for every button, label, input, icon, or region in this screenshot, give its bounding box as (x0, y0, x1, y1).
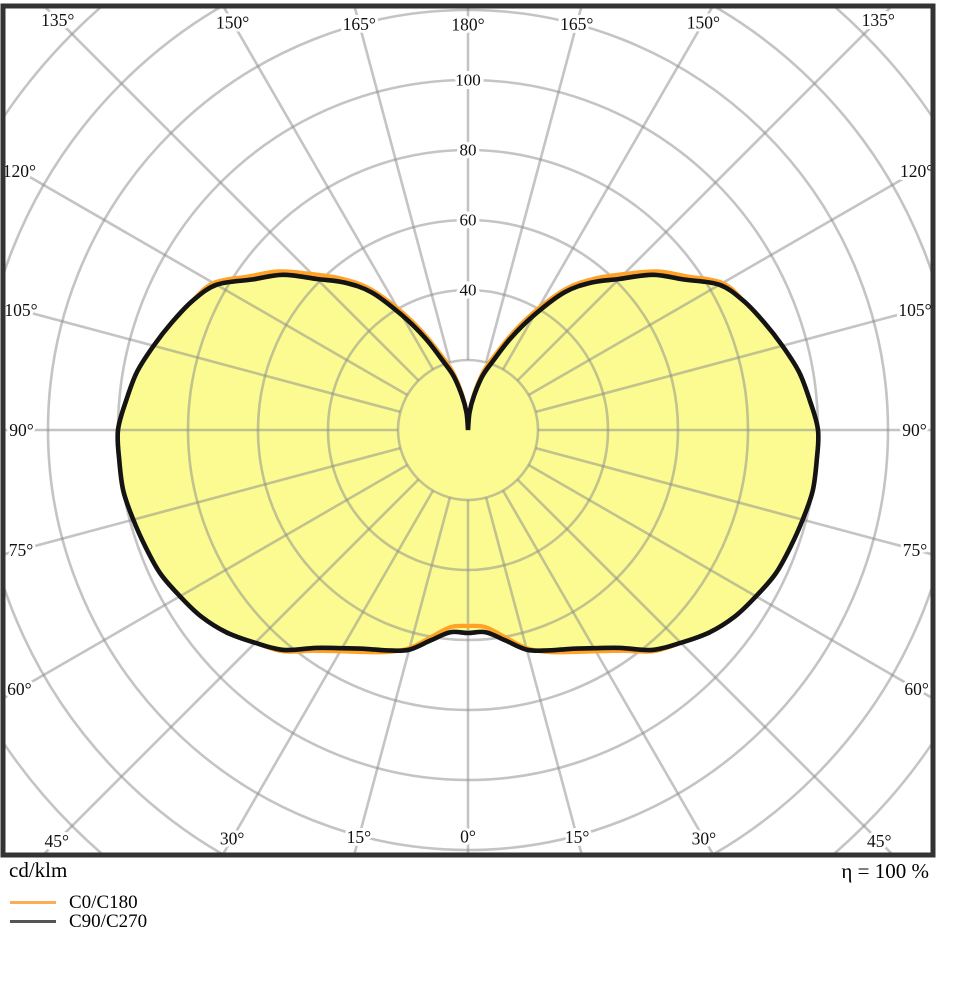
radial-tick-label-100: 100 (455, 71, 481, 90)
angle-label-150-right: 150° (687, 12, 720, 32)
angle-label-60-right: 60° (904, 679, 929, 699)
angle-label-165-left: 165° (343, 14, 376, 34)
legend-item-c90-c270: C90/C270 (10, 912, 147, 931)
angle-label-75-right: 75° (903, 540, 928, 560)
angle-label-90-left: 90° (9, 420, 34, 440)
angle-label-105-left: 105° (4, 300, 37, 320)
legend-label-c0-c180: C0/C180 (69, 893, 138, 912)
angle-label-135-left: 135° (41, 10, 74, 30)
radial-tick-label-80: 80 (460, 141, 477, 160)
angle-label-165-right: 165° (560, 14, 593, 34)
angle-label-75-left: 75° (9, 540, 34, 560)
angle-label-120-left: 120° (3, 161, 36, 181)
angle-label-60-left: 60° (7, 679, 32, 699)
legend-line-c0-icon (10, 901, 56, 904)
photometric-polar-diagram: 4060801000°15°15°30°30°45°45°60°60°75°75… (0, 0, 973, 1000)
angle-label-15-left: 15° (347, 827, 372, 847)
angle-label-30-left: 30° (220, 829, 245, 849)
angle-label-105-right: 105° (898, 300, 931, 320)
radial-tick-label-40: 40 (460, 281, 477, 300)
angle-label-45-right: 45° (867, 831, 892, 851)
legend-label-c90-c270: C90/C270 (69, 912, 147, 931)
angle-label-120-right: 120° (900, 161, 933, 181)
legend: C0/C180 C90/C270 (10, 893, 147, 931)
polar-chart: 4060801000°15°15°30°30°45°45°60°60°75°75… (0, 0, 973, 862)
legend-line-c90-icon (10, 920, 56, 923)
angle-label-180-right: 180° (451, 15, 484, 35)
angle-label-15-right: 15° (565, 827, 590, 847)
angle-label-90-right: 90° (902, 420, 927, 440)
angle-label-30-right: 30° (692, 829, 717, 849)
angle-label-45-left: 45° (45, 831, 70, 851)
angle-label-0-right: 0° (460, 827, 476, 847)
radial-tick-label-60: 60 (460, 211, 477, 230)
unit-label: cd/klm (9, 858, 67, 883)
angle-label-150-left: 150° (216, 12, 249, 32)
angle-label-135-right: 135° (862, 10, 895, 30)
legend-item-c0-c180: C0/C180 (10, 893, 147, 912)
efficiency-label: η = 100 % (841, 859, 929, 884)
